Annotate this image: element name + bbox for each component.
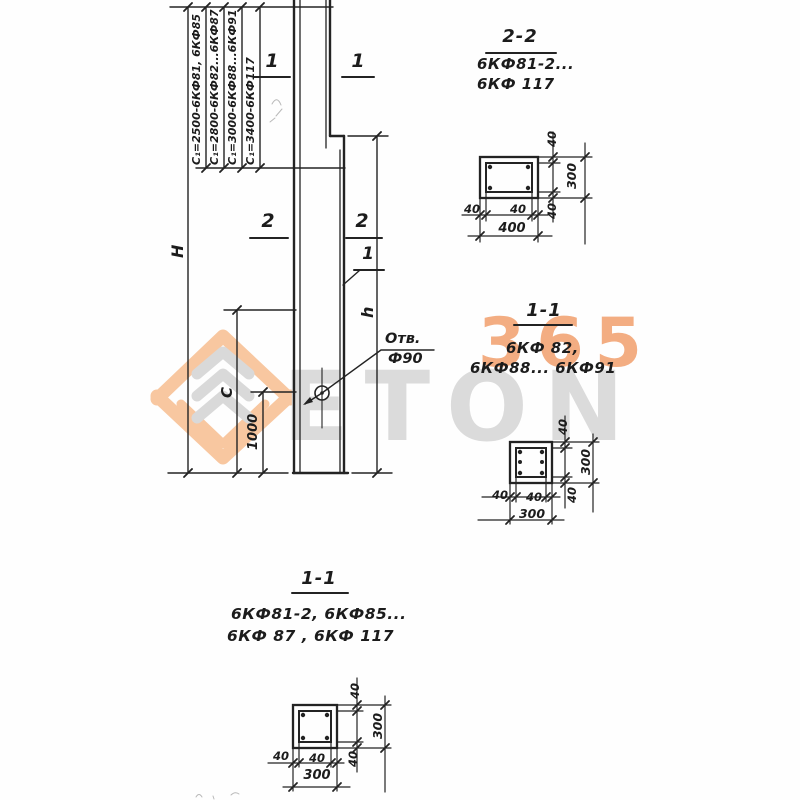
section-2-2-cover-bottom: 40 xyxy=(546,200,558,222)
section-2-2-width: 400 xyxy=(492,222,532,236)
c1-dim-label-4: С₁=3400-6КФ117 xyxy=(245,7,257,165)
dim-label-C: С xyxy=(220,364,236,398)
section-1-1-mid-height: 300 xyxy=(579,446,592,478)
section-1-1-mid-marks-line1: 6КФ 82, xyxy=(506,341,579,357)
section-1-1-mid-cover-top: 40 xyxy=(557,416,569,438)
hole-label-line2: Ф90 xyxy=(388,352,423,367)
hole-label-line1: Отв. xyxy=(385,332,420,347)
section-2-2-marks-line2: 6КФ 117 xyxy=(477,77,555,93)
section-2-2-cover-left: 40 xyxy=(459,203,485,215)
cut-mark-1-leader: 1 xyxy=(352,246,384,264)
section-1-1-mid-marks-line2: 6КФ88... 6КФ91 xyxy=(470,361,616,377)
labels-layer: С₁=2500-6КФ81, 6КФ85 С₁=2800-6КФ82...6КФ… xyxy=(0,0,800,800)
cut-mark-2-right: 2 xyxy=(344,212,380,232)
section-1-1-mid-cover-left: 40 xyxy=(488,489,512,501)
section-1-1-bottom-marks-line2: 6КФ 87 , 6КФ 117 xyxy=(227,628,394,644)
blueprint-canvas: ETON 365 xyxy=(0,0,800,800)
dim-label-1000: 1000 xyxy=(247,392,261,450)
section-1-1-mid-cover-right: 40 xyxy=(522,491,546,503)
section-1-1-bottom-cover-right: 40 xyxy=(304,752,330,764)
section-1-1-bottom-height: 300 xyxy=(371,710,384,742)
dim-label-H: Н xyxy=(170,224,187,258)
section-2-2-height: 300 xyxy=(565,160,578,192)
section-1-1-bottom-width: 300 xyxy=(297,769,337,783)
cut-mark-1-top-left: 1 xyxy=(254,52,290,72)
section-1-1-bottom-cover-left: 40 xyxy=(268,750,294,762)
section-1-1-bottom-marks-line1: 6КФ81-2, 6КФ85... xyxy=(231,606,406,622)
cut-mark-1-top-right: 1 xyxy=(340,52,376,72)
section-1-1-bottom-title: 1-1 xyxy=(290,570,348,589)
section-2-2-marks-line1: 6КФ81-2... xyxy=(477,57,574,73)
section-1-1-bottom-cover-top: 40 xyxy=(349,680,361,702)
section-2-2-cover-top: 40 xyxy=(546,128,558,150)
dim-label-h: h xyxy=(360,282,377,318)
c1-dim-label-1: С₁=2500-6КФ81, 6КФ85 xyxy=(191,7,203,165)
section-2-2-title: 2-2 xyxy=(488,28,552,47)
cut-mark-2-left: 2 xyxy=(250,212,286,232)
section-2-2-cover-right: 40 xyxy=(505,203,531,215)
c1-dim-label-3: С₁=3000-6КФ88...6КФ91 xyxy=(227,7,239,165)
section-1-1-mid-title: 1-1 xyxy=(514,302,574,321)
section-1-1-bottom-cover-bottom: 40 xyxy=(347,748,359,770)
section-1-1-mid-width: 300 xyxy=(513,507,551,520)
c1-dim-label-2: С₁=2800-6КФ82...6КФ87 xyxy=(209,7,221,165)
section-1-1-mid-cover-bottom: 40 xyxy=(566,484,578,506)
